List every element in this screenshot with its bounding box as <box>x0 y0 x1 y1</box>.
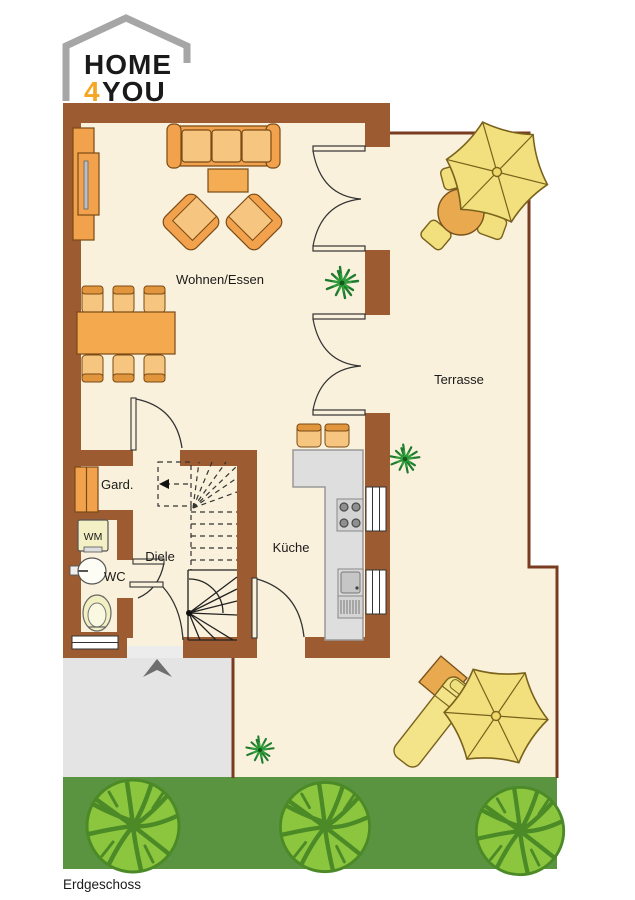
label-floor: Erdgeschoss <box>63 877 141 892</box>
dining-set <box>77 286 175 382</box>
dishwasher <box>338 596 363 618</box>
dining-table <box>77 312 175 354</box>
label-wc: WC <box>104 569 126 584</box>
sofa <box>167 124 280 168</box>
label-kitchen: Küche <box>273 540 310 555</box>
coffee-table <box>208 169 248 192</box>
logo-accent-4: 4 <box>84 76 101 107</box>
dining-chairs-bottom <box>82 355 165 382</box>
label-wardrobe: Gard. <box>101 477 134 492</box>
kitchen-sink <box>338 569 363 596</box>
window-kitchen-lower <box>366 570 386 614</box>
stove <box>337 499 363 531</box>
bush-left <box>87 780 179 872</box>
dining-chairs-top <box>82 286 165 313</box>
window-kitchen-upper <box>366 487 386 531</box>
floor-plan-svg: Wohnen/Essen Terrasse Küche Diele WC Gar… <box>0 0 635 900</box>
label-living: Wohnen/Essen <box>176 272 264 287</box>
entrance-paving <box>63 658 233 777</box>
floor-plan-page: Wohnen/Essen Terrasse Küche Diele WC Gar… <box>0 0 635 900</box>
label-terrace: Terrasse <box>434 372 484 387</box>
window-wc-wall <box>72 636 118 649</box>
logo: HOME 4 YOU <box>66 18 187 107</box>
logo-word-you: YOU <box>102 76 166 107</box>
toilet <box>83 595 111 631</box>
bush-right <box>476 787 563 874</box>
label-washing-machine: WM <box>84 531 103 543</box>
wardrobe <box>75 467 98 512</box>
label-hall: Diele <box>145 549 175 564</box>
bush-middle <box>280 782 369 871</box>
